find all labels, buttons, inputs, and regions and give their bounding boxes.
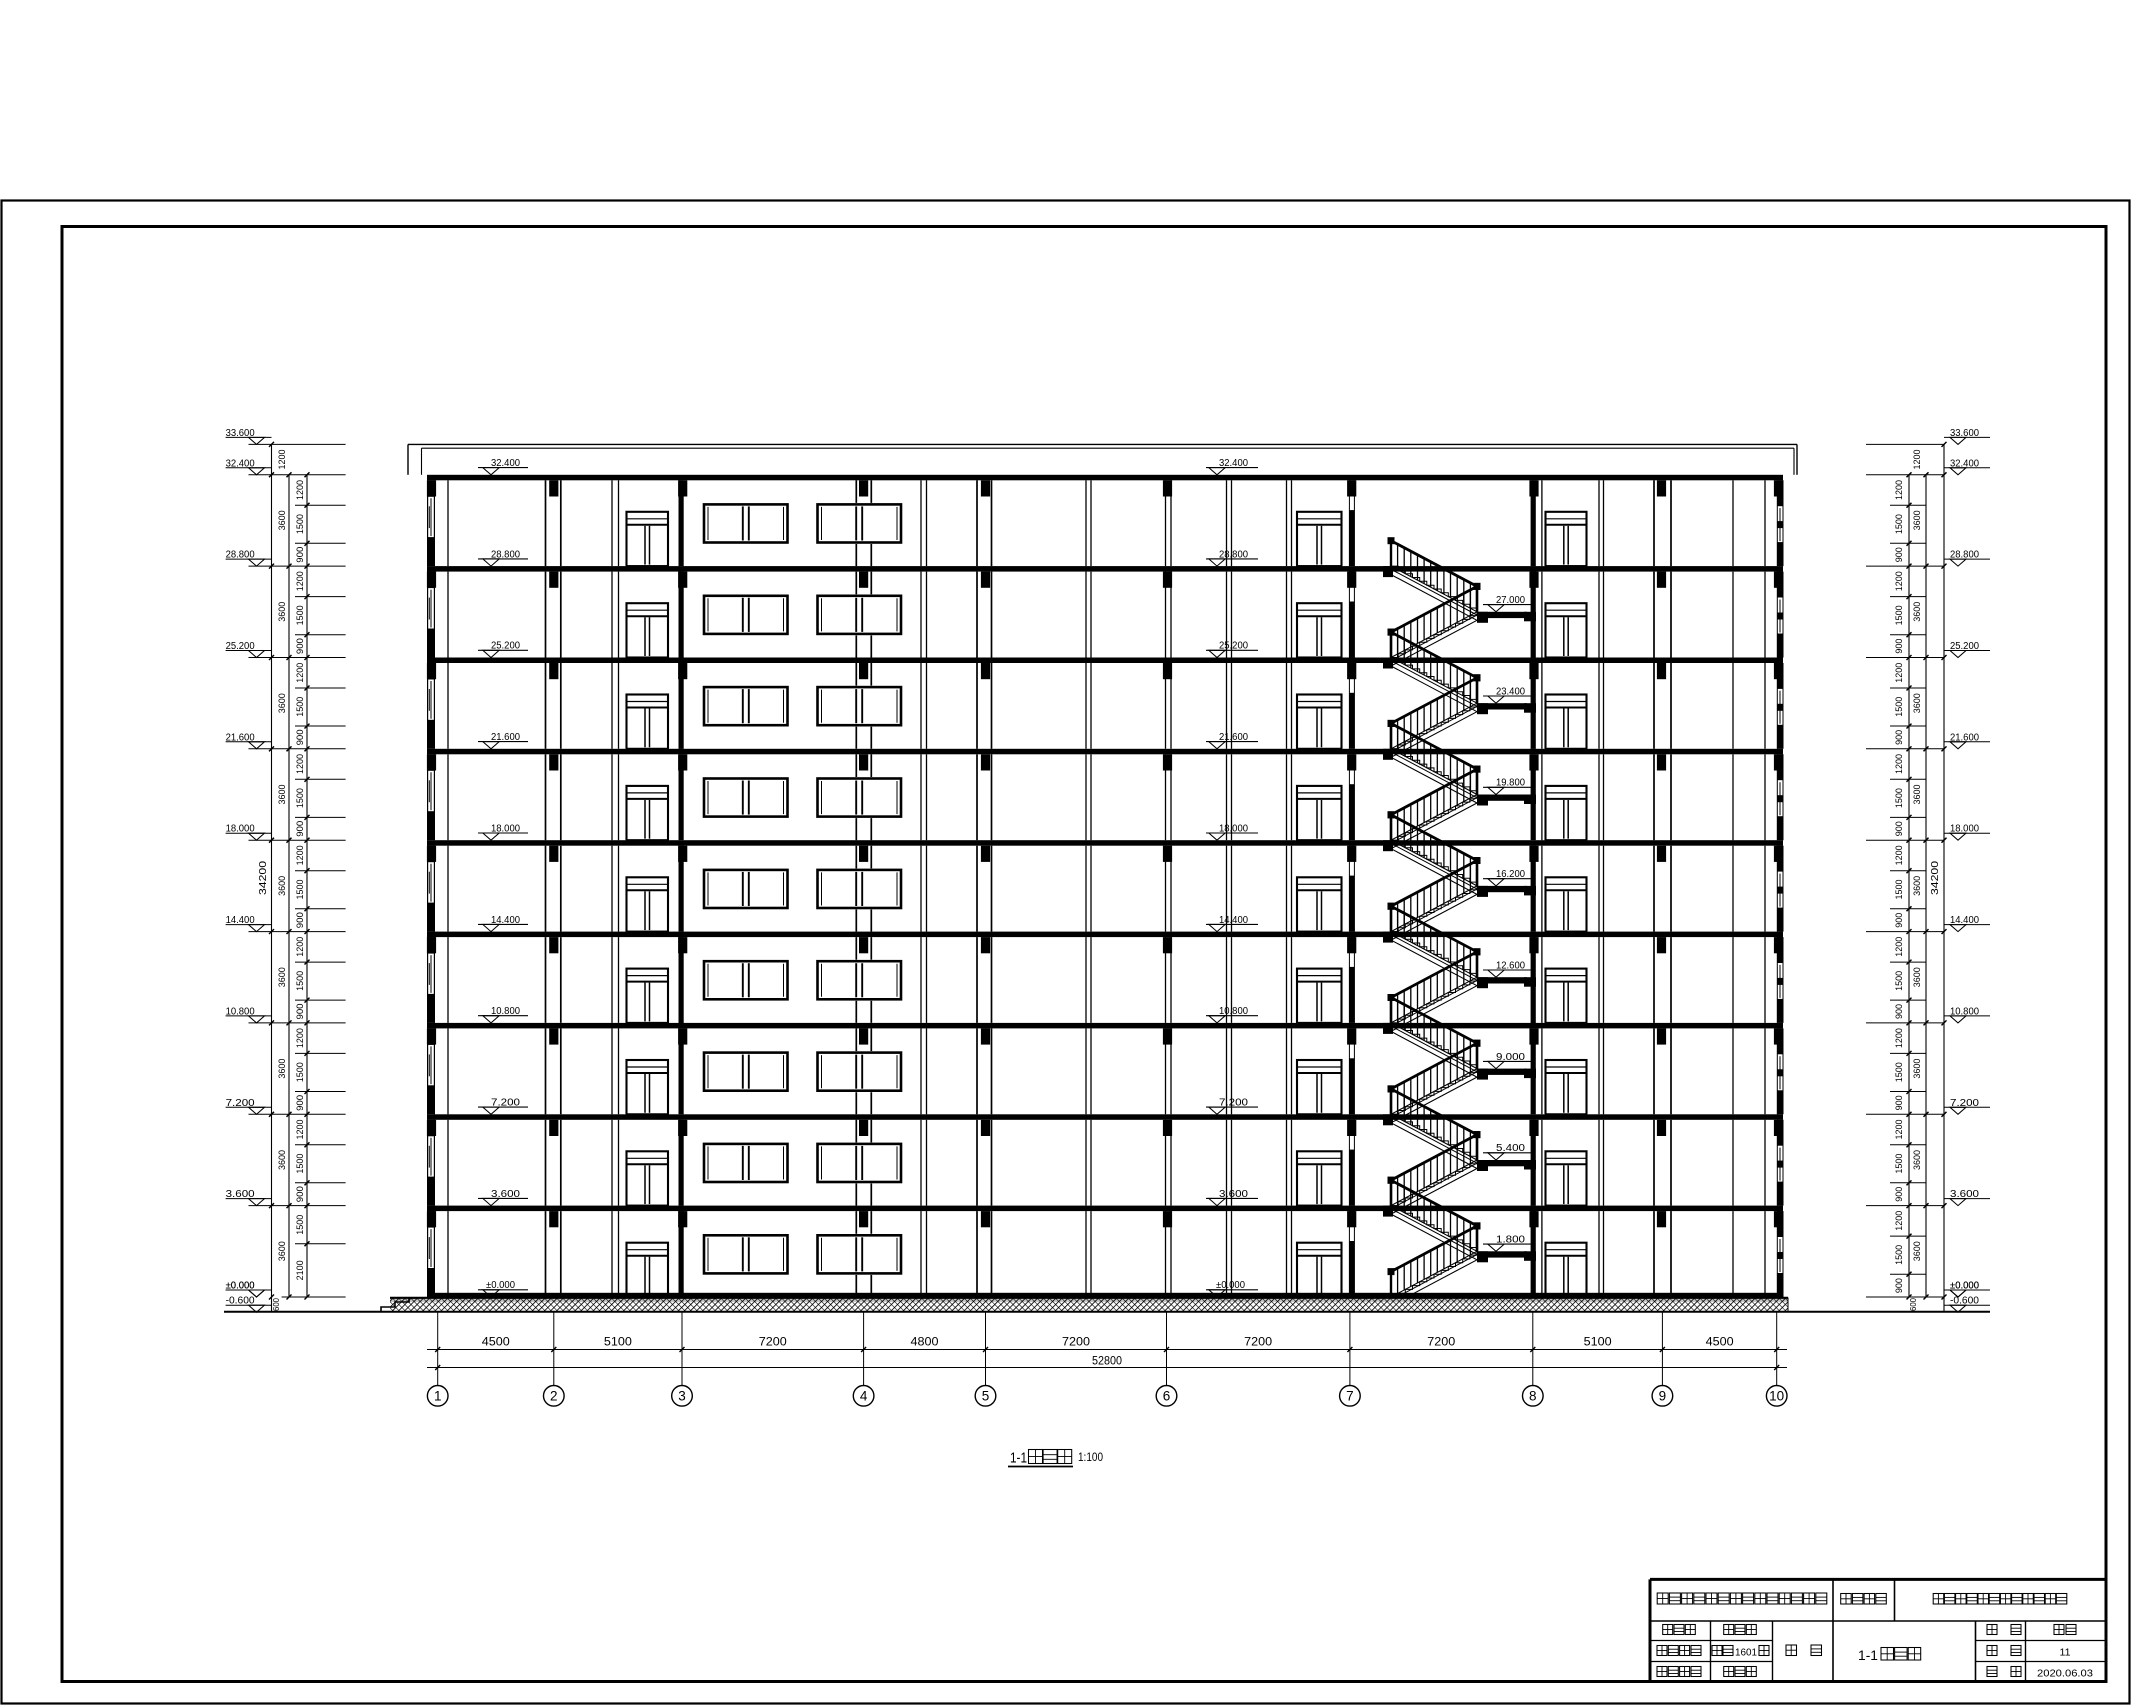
svg-text:7: 7 [1346,1389,1354,1404]
svg-text:1200: 1200 [1894,1028,1905,1048]
svg-text:21.600: 21.600 [1219,732,1248,743]
svg-text:16.200: 16.200 [1496,869,1525,880]
svg-text:900: 900 [295,638,306,654]
svg-text:10.800: 10.800 [1219,1006,1248,1017]
svg-text:3600: 3600 [277,1241,288,1261]
svg-text:±0.000: ±0.000 [486,1280,515,1291]
svg-text:900: 900 [1894,730,1905,745]
svg-text:900: 900 [295,821,306,837]
svg-text:1500: 1500 [1894,880,1905,900]
svg-text:14.400: 14.400 [1219,915,1248,926]
svg-text:1500: 1500 [1894,788,1905,808]
svg-text:900: 900 [295,1186,306,1202]
svg-text:3600: 3600 [277,1059,288,1079]
svg-text:3600: 3600 [277,876,288,896]
svg-text:7200: 7200 [1062,1337,1090,1349]
svg-text:900: 900 [1894,1187,1905,1202]
svg-text:12.600: 12.600 [1496,960,1525,971]
svg-text:1:100: 1:100 [1078,1452,1103,1464]
svg-text:1500: 1500 [295,880,306,900]
svg-text:1500: 1500 [295,697,306,717]
svg-text:1500: 1500 [295,605,306,625]
svg-text:5100: 5100 [604,1337,632,1349]
svg-text:1200: 1200 [1894,480,1905,500]
svg-text:10.800: 10.800 [491,1006,520,1017]
svg-text:14.400: 14.400 [491,915,520,926]
svg-text:1200: 1200 [1894,1211,1905,1231]
svg-text:10: 10 [1769,1389,1784,1404]
svg-text:34200: 34200 [258,860,269,895]
svg-text:23.400: 23.400 [1496,686,1525,697]
svg-text:5.400: 5.400 [1496,1143,1526,1154]
svg-text:8: 8 [1529,1389,1537,1404]
svg-text:900: 900 [1894,913,1905,928]
svg-text:1500: 1500 [295,1215,306,1235]
svg-text:900: 900 [295,547,306,563]
svg-text:900: 900 [295,1004,306,1020]
svg-text:1200: 1200 [295,571,306,591]
svg-text:3.600: 3.600 [1219,1189,1249,1200]
svg-text:3600: 3600 [277,1150,288,1170]
svg-text:25.200: 25.200 [1219,641,1248,652]
svg-text:9.000: 9.000 [1496,1052,1526,1063]
svg-text:1200: 1200 [295,663,306,683]
svg-text:1500: 1500 [1894,1154,1905,1174]
svg-text:900: 900 [1894,1095,1905,1110]
svg-text:1200: 1200 [295,754,306,774]
svg-text:4500: 4500 [482,1337,510,1349]
svg-text:4800: 4800 [911,1337,939,1349]
svg-text:28.800: 28.800 [491,549,520,560]
svg-text:1200: 1200 [295,1028,306,1048]
svg-text:900: 900 [1894,1004,1905,1019]
svg-text:52800: 52800 [1092,1356,1122,1368]
svg-text:11: 11 [2060,1647,2071,1659]
svg-text:18.000: 18.000 [1219,823,1248,834]
svg-text:1200: 1200 [1894,571,1905,591]
svg-text:25.200: 25.200 [491,641,520,652]
svg-text:32.400: 32.400 [1219,458,1248,469]
svg-text:7200: 7200 [759,1337,787,1349]
svg-text:1200: 1200 [1894,845,1905,865]
svg-text:1200: 1200 [1894,1120,1905,1140]
svg-text:2020.06.03: 2020.06.03 [2037,1668,2093,1680]
svg-text:1200: 1200 [295,937,306,957]
svg-text:3: 3 [678,1389,686,1404]
svg-text:900: 900 [295,1095,306,1111]
svg-text:4500: 4500 [1706,1337,1734,1349]
svg-text:900: 900 [295,729,306,745]
svg-text:21.600: 21.600 [491,732,520,743]
svg-text:3600: 3600 [1912,1059,1923,1079]
svg-text:7200: 7200 [1244,1337,1272,1349]
svg-text:1-1: 1-1 [1858,1647,1878,1663]
svg-text:3600: 3600 [1912,785,1923,805]
svg-text:1500: 1500 [1894,514,1905,534]
svg-text:3600: 3600 [277,785,288,805]
svg-text:3600: 3600 [1912,693,1923,713]
svg-text:1500: 1500 [1894,1245,1905,1265]
svg-text:1500: 1500 [295,971,306,991]
svg-text:900: 900 [295,912,306,928]
svg-text:3600: 3600 [277,693,288,713]
svg-text:7.200: 7.200 [491,1098,521,1109]
svg-text:7200: 7200 [1427,1337,1455,1349]
svg-text:1500: 1500 [295,514,306,534]
svg-text:19.800: 19.800 [1496,778,1525,789]
svg-text:3600: 3600 [1912,602,1923,622]
svg-text:3600: 3600 [1912,1241,1923,1261]
svg-text:1200: 1200 [1894,754,1905,774]
svg-text:2100: 2100 [295,1260,306,1280]
svg-text:2: 2 [550,1389,558,1404]
svg-text:1500: 1500 [1894,971,1905,991]
svg-text:18.000: 18.000 [491,823,520,834]
svg-text:3600: 3600 [277,602,288,622]
svg-text:3600: 3600 [1912,967,1923,987]
svg-text:1500: 1500 [295,1154,306,1174]
svg-text:9: 9 [1659,1389,1667,1404]
svg-text:3600: 3600 [1912,510,1923,530]
svg-text:28.800: 28.800 [1219,549,1248,560]
svg-text:1500: 1500 [295,788,306,808]
svg-text:1200: 1200 [1912,450,1923,470]
svg-text:5: 5 [982,1389,990,1404]
svg-text:7.200: 7.200 [1219,1098,1249,1109]
svg-text:600: 600 [271,1298,281,1311]
svg-text:600: 600 [1908,1298,1918,1311]
svg-text:3600: 3600 [1912,1150,1923,1170]
svg-text:1601: 1601 [1735,1648,1757,1659]
svg-text:1500: 1500 [1894,697,1905,717]
svg-text:1: 1 [434,1389,442,1404]
svg-text:1200: 1200 [277,450,288,470]
svg-text:3.600: 3.600 [491,1189,521,1200]
svg-text:3600: 3600 [277,510,288,530]
svg-text:1500: 1500 [1894,605,1905,625]
svg-text:5100: 5100 [1584,1337,1612,1349]
svg-text:1-1: 1-1 [1010,1450,1027,1467]
svg-text:900: 900 [1894,1278,1905,1293]
svg-text:27.000: 27.000 [1496,595,1525,606]
svg-text:1200: 1200 [295,845,306,865]
svg-text:1200: 1200 [1894,663,1905,683]
svg-text:1200: 1200 [295,1120,306,1140]
svg-text:32.400: 32.400 [491,458,520,469]
svg-text:±0.000: ±0.000 [1216,1280,1245,1291]
svg-text:1.800: 1.800 [1496,1235,1526,1246]
svg-text:900: 900 [1894,639,1905,654]
svg-text:4: 4 [860,1389,868,1404]
svg-text:3600: 3600 [1912,876,1923,896]
svg-text:3600: 3600 [277,967,288,987]
svg-text:900: 900 [1894,547,1905,562]
svg-text:6: 6 [1163,1389,1171,1404]
svg-text:900: 900 [1894,821,1905,836]
svg-text:1500: 1500 [295,1062,306,1082]
svg-text:34200: 34200 [1930,860,1941,895]
svg-text:1500: 1500 [1894,1062,1905,1082]
svg-text:1200: 1200 [1894,937,1905,957]
svg-text:1200: 1200 [295,480,306,500]
